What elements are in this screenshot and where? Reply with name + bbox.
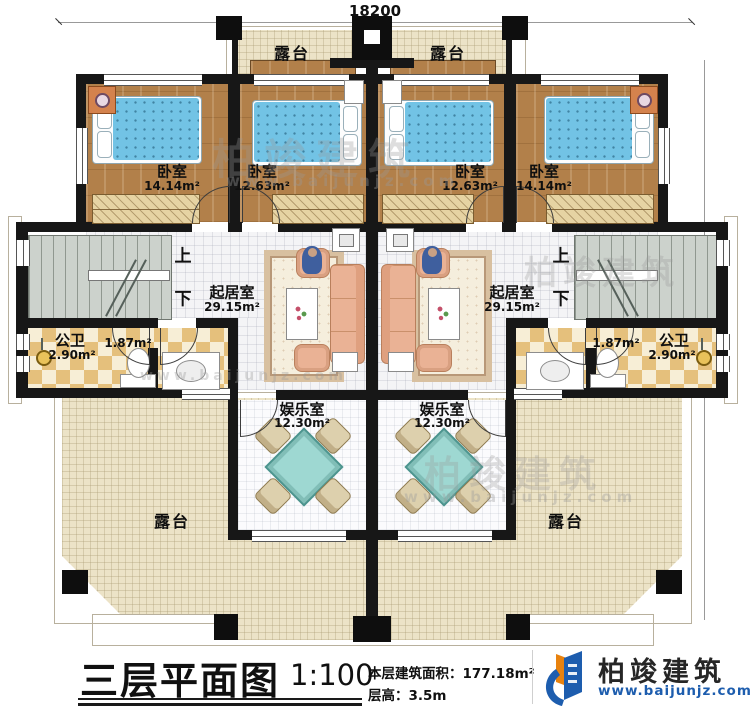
- room-area-bedroom-3: 12.63m²: [442, 179, 498, 193]
- room-area-game-right: 12.30m²: [414, 416, 470, 430]
- wall: [502, 222, 516, 232]
- armchair: [416, 344, 452, 372]
- washbasin: [540, 360, 570, 382]
- wall: [228, 530, 252, 540]
- washbasin: [176, 360, 206, 382]
- coffee-table: [286, 288, 318, 340]
- flowers-icon: [437, 305, 450, 321]
- armchair: [294, 344, 330, 372]
- window: [104, 74, 202, 86]
- window: [76, 128, 88, 184]
- sofa: [381, 264, 416, 364]
- column: [62, 570, 88, 594]
- column: [502, 16, 528, 40]
- column: [506, 614, 530, 640]
- window: [716, 240, 730, 266]
- bed-pillow: [389, 106, 404, 132]
- drawing-title: 三层平面图: [80, 650, 280, 705]
- window: [16, 356, 30, 372]
- room-area-bedroom-4: 14.14m²: [516, 179, 572, 193]
- window: [252, 530, 346, 542]
- wall: [76, 74, 104, 84]
- bed-duvet: [405, 102, 491, 162]
- room-area-wash-right: 1.87m²: [592, 336, 639, 350]
- room-area-living-left: 29.15m²: [204, 300, 260, 314]
- window: [658, 128, 670, 184]
- window: [16, 334, 30, 350]
- stairs-up-label: 上: [553, 242, 570, 267]
- floor-area-note: 本层建筑面积：177.18m²: [368, 662, 535, 682]
- wall: [562, 388, 728, 398]
- shower-stem: [41, 338, 43, 350]
- company-logo-icon: [536, 646, 594, 708]
- title-divider: [532, 650, 533, 704]
- floor-plan: 18200 15840: [0, 0, 750, 711]
- bed: [384, 100, 494, 166]
- tv-cabinet: [332, 228, 360, 252]
- flue-opening: [364, 30, 380, 44]
- flowers-icon: [295, 305, 308, 321]
- bed-duvet: [254, 102, 340, 162]
- bed-pillow: [343, 134, 358, 160]
- window: [716, 356, 730, 372]
- wall: [16, 318, 158, 328]
- column: [216, 16, 242, 40]
- wall: [16, 388, 182, 398]
- wardrobe: [92, 194, 200, 224]
- room-label-terrace: 露台: [154, 508, 190, 532]
- person-figure: [302, 246, 322, 274]
- room-area-bath-left: 2.90m²: [48, 348, 95, 362]
- stairs-down-label: 下: [553, 285, 570, 310]
- tv-cabinet: [386, 228, 414, 252]
- person-head: [428, 248, 437, 257]
- wardrobe: [546, 194, 654, 224]
- room-label-terrace: 露台: [430, 40, 466, 64]
- stairs-up-label: 上: [175, 242, 192, 267]
- room-area-living-right: 29.15m²: [484, 300, 540, 314]
- company-website: www.baijunjz.com: [598, 683, 750, 699]
- column: [214, 614, 238, 640]
- sofa: [330, 264, 365, 364]
- wall: [202, 74, 254, 84]
- column: [353, 616, 391, 642]
- window: [394, 74, 489, 86]
- person-figure: [422, 246, 442, 274]
- nightstand: [344, 80, 364, 104]
- bed-pillow: [389, 134, 404, 160]
- end-table: [388, 352, 414, 372]
- end-table: [332, 352, 358, 372]
- room-area-game-left: 12.30m²: [274, 416, 330, 430]
- window: [254, 74, 349, 86]
- room-label-terrace: 露台: [548, 508, 584, 532]
- bed-duvet: [113, 98, 199, 160]
- column: [656, 570, 682, 594]
- lamp-icon: [637, 93, 652, 108]
- window: [398, 530, 492, 542]
- bed-pillow: [635, 131, 650, 158]
- wall: [586, 318, 728, 328]
- bed-duvet: [546, 98, 632, 160]
- drawing-scale: 1:100: [290, 658, 374, 692]
- shower-head-icon: [696, 350, 712, 366]
- room-area-bedroom-1: 14.14m²: [144, 179, 200, 193]
- wall: [506, 318, 516, 540]
- window: [541, 74, 639, 86]
- bed-pillow: [97, 131, 112, 158]
- title-underline: [78, 698, 362, 700]
- bed-pillow: [343, 106, 358, 132]
- room-label-terrace: 露台: [274, 40, 310, 64]
- wall: [346, 530, 370, 540]
- nightstand-lamp: [630, 86, 658, 114]
- wall: [504, 84, 516, 222]
- stairs-down-label: 下: [175, 285, 192, 310]
- wall: [228, 222, 242, 232]
- wall: [492, 530, 516, 540]
- lamp-icon: [95, 93, 110, 108]
- nightstand: [382, 80, 402, 104]
- wardrobe: [382, 194, 474, 224]
- wall: [489, 74, 541, 84]
- nightstand-lamp: [88, 86, 116, 114]
- wall: [639, 74, 668, 84]
- title-underline: [78, 703, 362, 706]
- floor-height-note: 层高：3.5m: [368, 684, 446, 704]
- room-area-bath-right: 2.90m²: [648, 348, 695, 362]
- person-head: [308, 248, 317, 257]
- room-area-wash-left: 1.87m²: [104, 336, 151, 350]
- wardrobe: [272, 194, 364, 224]
- coffee-table: [428, 288, 460, 340]
- room-area-bedroom-2: 12.63m²: [234, 179, 290, 193]
- bed: [252, 100, 362, 166]
- tv-icon: [393, 234, 408, 247]
- wall: [374, 530, 398, 540]
- window: [716, 334, 730, 350]
- shower-stem: [701, 338, 703, 350]
- wall: [228, 318, 238, 540]
- window: [16, 240, 30, 266]
- tv-icon: [339, 234, 354, 247]
